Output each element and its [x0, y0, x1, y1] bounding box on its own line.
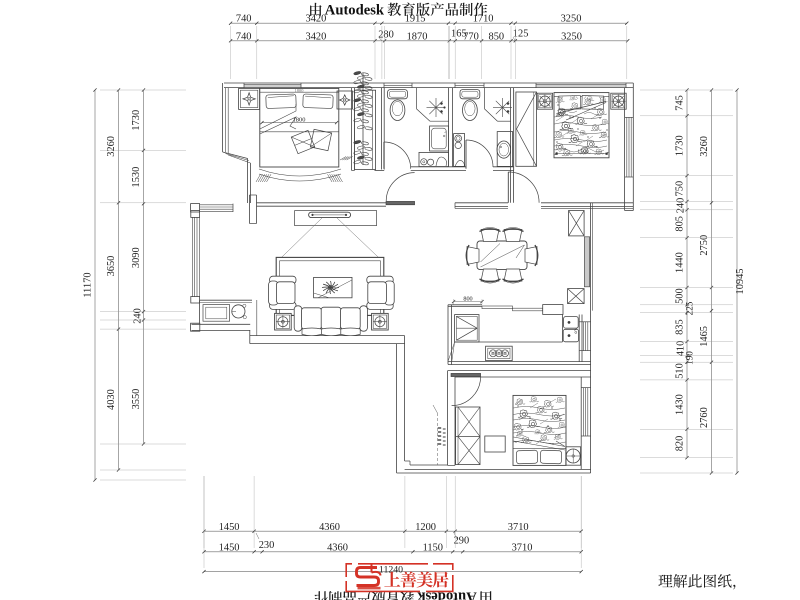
svg-text:3550: 3550	[131, 389, 142, 410]
svg-text:800: 800	[463, 295, 472, 302]
svg-text:11170: 11170	[83, 272, 94, 297]
svg-text:10945: 10945	[735, 269, 746, 295]
svg-text:820: 820	[675, 436, 686, 452]
svg-text:750: 750	[675, 181, 686, 197]
svg-text:745: 745	[675, 95, 686, 111]
svg-text:1800: 1800	[293, 116, 306, 123]
svg-text:1800: 1800	[295, 88, 305, 93]
svg-text:2760: 2760	[699, 407, 710, 428]
svg-text:500: 500	[675, 288, 686, 304]
svg-text:4030: 4030	[106, 389, 117, 410]
svg-text:1915: 1915	[405, 14, 426, 25]
svg-text:3260: 3260	[106, 136, 117, 157]
svg-text:1730: 1730	[675, 135, 686, 156]
svg-text:2750: 2750	[699, 235, 710, 256]
svg-text:230: 230	[259, 540, 275, 551]
svg-text:280: 280	[378, 29, 394, 40]
svg-text:1500: 1500	[577, 149, 588, 155]
svg-text:1530: 1530	[131, 167, 142, 188]
svg-text:740: 740	[236, 14, 252, 25]
svg-text:3260: 3260	[699, 136, 710, 157]
svg-text:240: 240	[133, 308, 144, 324]
svg-text:240: 240	[676, 198, 687, 214]
svg-text:225: 225	[685, 301, 695, 315]
svg-text:1430: 1430	[675, 394, 686, 415]
svg-text:1710: 1710	[473, 14, 494, 25]
svg-text:740: 740	[236, 31, 252, 42]
svg-text:1870: 1870	[407, 31, 428, 42]
svg-text:Autodesk: Autodesk	[417, 589, 477, 600]
svg-text:3420: 3420	[306, 14, 327, 25]
svg-text:190: 190	[685, 351, 695, 365]
svg-text:1730: 1730	[131, 110, 142, 131]
svg-text:4360: 4360	[327, 543, 348, 554]
svg-text:3090: 3090	[131, 247, 142, 268]
svg-text:770: 770	[463, 31, 479, 42]
svg-text:1450: 1450	[219, 543, 240, 554]
svg-text:1200: 1200	[415, 522, 436, 533]
svg-text:Autodesk: Autodesk	[325, 3, 385, 19]
svg-text:4360: 4360	[319, 522, 340, 533]
svg-text:835: 835	[675, 319, 686, 335]
svg-text:3420: 3420	[306, 31, 327, 42]
svg-text:1450: 1450	[219, 522, 240, 533]
svg-text:1150: 1150	[423, 543, 443, 554]
svg-text:3650: 3650	[106, 256, 117, 277]
svg-text:805: 805	[675, 216, 686, 232]
svg-text:3250: 3250	[561, 31, 582, 42]
svg-text:1465: 1465	[699, 326, 710, 347]
svg-text:850: 850	[489, 31, 505, 42]
svg-text:1440: 1440	[675, 252, 686, 273]
svg-text:3710: 3710	[508, 522, 529, 533]
svg-text:3710: 3710	[512, 543, 533, 554]
svg-text:3250: 3250	[561, 14, 582, 25]
